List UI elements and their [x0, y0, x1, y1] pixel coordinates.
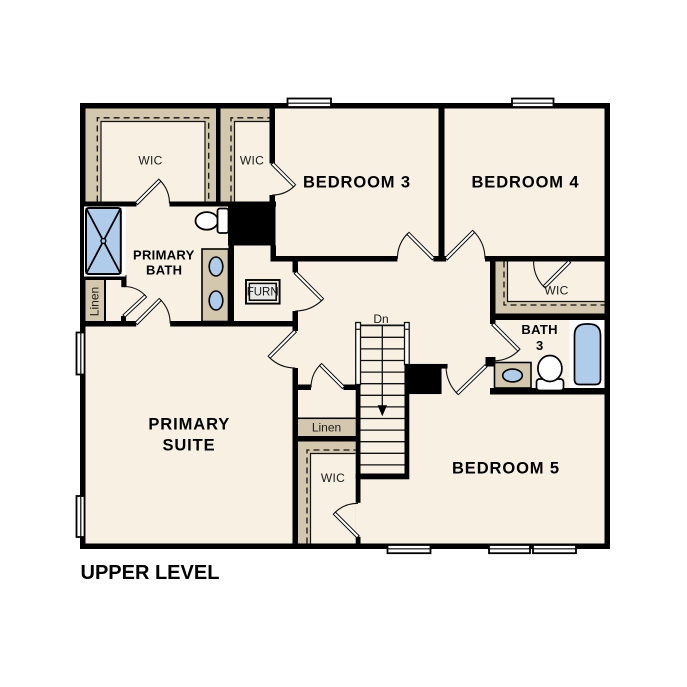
svg-text:3: 3 — [536, 338, 544, 353]
svg-text:BATH: BATH — [521, 322, 557, 337]
svg-text:WIC: WIC — [138, 153, 162, 167]
svg-text:WIC: WIC — [240, 153, 264, 167]
svg-text:BEDROOM 4: BEDROOM 4 — [471, 174, 579, 192]
svg-text:BEDROOM 3: BEDROOM 3 — [303, 174, 411, 192]
svg-text:SUITE: SUITE — [162, 437, 215, 455]
svg-text:WIC: WIC — [321, 471, 345, 485]
svg-text:PRIMARY: PRIMARY — [148, 416, 230, 434]
svg-text:FURN: FURN — [247, 286, 279, 298]
svg-text:Dn: Dn — [373, 312, 388, 326]
svg-text:Linen: Linen — [87, 287, 101, 316]
svg-text:Linen: Linen — [312, 420, 341, 434]
svg-text:WIC: WIC — [544, 284, 568, 298]
svg-text:BEDROOM 5: BEDROOM 5 — [452, 460, 560, 478]
svg-text:UPPER LEVEL: UPPER LEVEL — [81, 562, 220, 584]
svg-text:PRIMARY: PRIMARY — [133, 248, 195, 263]
svg-text:BATH: BATH — [146, 263, 182, 278]
